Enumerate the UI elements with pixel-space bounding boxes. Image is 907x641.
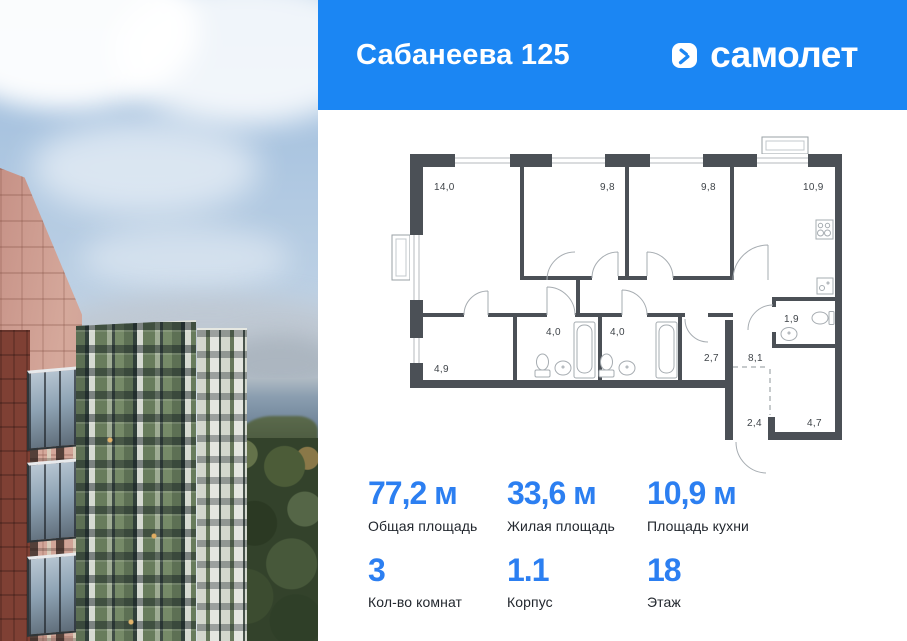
cloud xyxy=(80,225,290,290)
stat-total-area: 77,2 м Общая площадь xyxy=(368,477,507,534)
dashed-boundaries xyxy=(733,367,770,415)
stat-value: 3 xyxy=(368,554,507,588)
stat-label: Корпус xyxy=(507,594,647,610)
room-label: 10,9 xyxy=(803,182,824,193)
page-title: Сабанеева 125 xyxy=(356,39,570,72)
samolet-logo-icon xyxy=(672,43,697,68)
stat-living-area: 33,6 м Жилая площадь xyxy=(507,477,647,534)
stat-rooms: 3 Кол-во комнат xyxy=(368,554,507,611)
stats-grid: 77,2 м Общая площадь 33,6 м Жилая площад… xyxy=(368,477,877,610)
stat-label: Кол-во комнат xyxy=(368,594,507,610)
cloud xyxy=(30,120,260,215)
info-panel: Сабанеева 125 самолет xyxy=(318,0,907,641)
stat-label: Этаж xyxy=(647,594,877,610)
stat-value: 33,6 м xyxy=(507,477,647,511)
room-label: 2,4 xyxy=(747,418,762,429)
green-tower xyxy=(76,320,196,641)
stat-label: Жилая площадь xyxy=(507,518,647,534)
bathtub-icon xyxy=(656,322,677,378)
toilet-icon xyxy=(599,354,614,377)
toilet-icon xyxy=(535,354,550,377)
brand-logo: самолет xyxy=(672,34,858,76)
floor-plan-drawing: 14,0 9,8 9,8 10,9 4,0 4,0 4,9 2,7 8,1 1,… xyxy=(385,120,855,480)
room-label: 9,8 xyxy=(600,182,615,193)
brand-name: самолет xyxy=(710,34,858,76)
kitchen-sink-icon xyxy=(817,278,833,294)
stat-label: Площадь кухни xyxy=(647,518,877,534)
sink-icon xyxy=(555,361,571,375)
bay-window xyxy=(392,235,410,280)
room-label: 4,9 xyxy=(434,364,449,375)
bathtub-icon xyxy=(574,322,595,378)
header: Сабанеева 125 самолет xyxy=(318,0,907,110)
stat-kitchen-area: 10,9 м Площадь кухни xyxy=(647,477,877,534)
stat-label: Общая площадь xyxy=(368,518,507,534)
room-label: 14,0 xyxy=(434,182,455,193)
stat-value: 10,9 м xyxy=(647,477,877,511)
room-label: 1,9 xyxy=(784,314,799,325)
stat-value: 77,2 м xyxy=(368,477,507,511)
stat-floor: 18 Этаж xyxy=(647,554,877,611)
sink-icon xyxy=(619,361,635,375)
red-facade xyxy=(0,330,30,641)
balcony xyxy=(762,137,808,154)
room-label: 4,0 xyxy=(546,327,561,338)
white-tower xyxy=(197,328,247,641)
listing-card[interactable]: Сабанеева 125 самолет xyxy=(0,0,907,641)
walls xyxy=(410,154,842,440)
room-label: 8,1 xyxy=(748,353,763,364)
stat-value: 18 xyxy=(647,554,877,588)
building-photo xyxy=(0,0,318,641)
stat-value: 1.1 xyxy=(507,554,647,588)
toilet-icon xyxy=(812,312,834,325)
cloud xyxy=(110,0,318,125)
stove-icon xyxy=(816,220,833,239)
room-label: 4,0 xyxy=(610,327,625,338)
room-label: 4,7 xyxy=(807,418,822,429)
floor-plan: 14,0 9,8 9,8 10,9 4,0 4,0 4,9 2,7 8,1 1,… xyxy=(385,120,855,480)
stat-building: 1.1 Корпус xyxy=(507,554,647,611)
room-label: 9,8 xyxy=(701,182,716,193)
sink-icon xyxy=(781,328,797,341)
room-label: 2,7 xyxy=(704,353,719,364)
